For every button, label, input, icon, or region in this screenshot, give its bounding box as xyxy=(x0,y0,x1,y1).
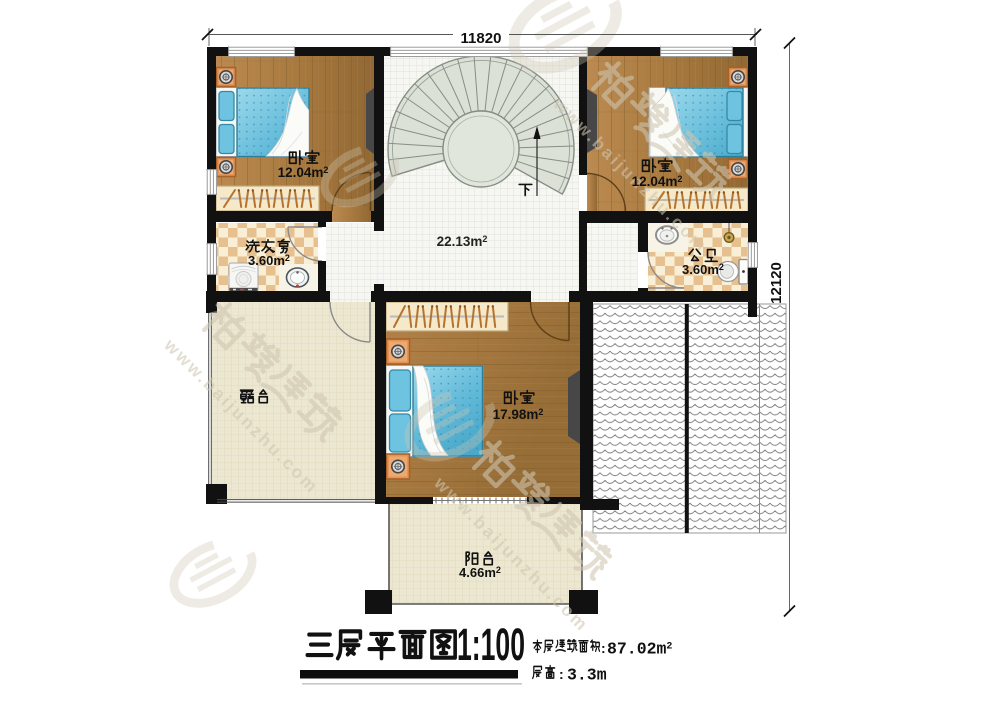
svg-text:3.60m2: 3.60m2 xyxy=(682,262,724,277)
svg-text:87.02m2: 87.02m2 xyxy=(607,640,672,659)
svg-text:3.60m2: 3.60m2 xyxy=(248,253,290,268)
svg-text:17.98m2: 17.98m2 xyxy=(493,407,544,422)
svg-text::: : xyxy=(559,666,564,682)
svg-text:12120: 12120 xyxy=(768,262,785,304)
svg-text:3.3m: 3.3m xyxy=(567,666,607,685)
svg-text:4.66m2: 4.66m2 xyxy=(459,565,501,580)
svg-text:1:100: 1:100 xyxy=(457,619,525,670)
svg-text:12.04m2: 12.04m2 xyxy=(632,174,683,189)
svg-text:12.04m2: 12.04m2 xyxy=(278,165,329,180)
svg-text:11820: 11820 xyxy=(461,30,502,47)
svg-text::: : xyxy=(601,640,606,656)
svg-text:22.13m2: 22.13m2 xyxy=(437,234,488,249)
